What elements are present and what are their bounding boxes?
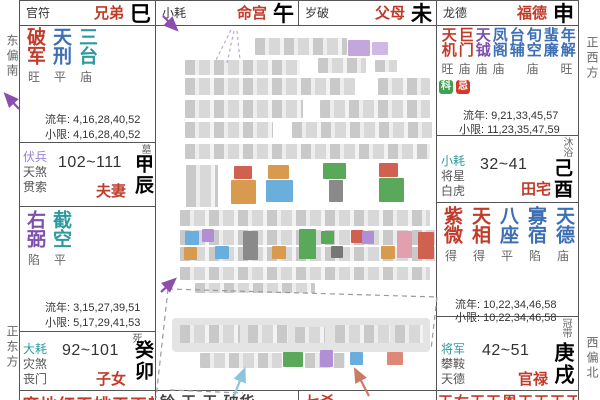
stem-branch: 己酉 — [551, 158, 572, 200]
palace-label-property[interactable]: 沐浴 小耗 将星 白虎 32~41 田宅 己酉 — [436, 135, 578, 202]
palace-label-children[interactable]: 死 大耗 灾煞 丧门 92~101 子女 癸卯 — [19, 331, 155, 390]
side-label-west: 正西方 — [584, 36, 600, 81]
star-name: 台辅 — [507, 27, 524, 57]
censored-color-block — [418, 232, 434, 259]
star-name: 天机 — [439, 27, 456, 57]
censored-block — [318, 58, 366, 73]
stem-branch: 甲辰 — [131, 154, 153, 196]
censored-color-block — [381, 246, 395, 259]
star-name: 旬空 — [524, 27, 541, 57]
hua-ke-badge: 科 — [439, 80, 453, 94]
censored-color-block — [299, 229, 316, 259]
age-range: 42~51 — [482, 342, 529, 360]
censored-color-block — [231, 180, 256, 204]
star-name: 右弼 — [24, 210, 44, 248]
censored-region — [156, 26, 435, 389]
star-column: 旬空 庙 — [524, 27, 541, 77]
censored-color-block — [331, 246, 343, 258]
censored-color-block — [215, 246, 229, 259]
minor-star: 灾煞 — [23, 358, 47, 371]
censored-color-block — [184, 247, 197, 260]
censored-block — [395, 325, 423, 343]
censored-color-block — [379, 178, 404, 202]
star-name: 八座 — [497, 206, 517, 244]
censored-color-block — [362, 231, 374, 244]
palace-header-parents[interactable]: 岁破 父母 未 — [299, 0, 436, 25]
palace-name: 父母 — [375, 2, 405, 23]
censored-block — [378, 78, 430, 95]
life-stage: 沐浴 — [561, 137, 572, 157]
stem-branch: 庚戌 — [550, 342, 573, 386]
life-stage: 墓 — [139, 144, 150, 154]
clipped-star-row: 廉地红天姚天巫耗 — [22, 391, 154, 400]
star-grade: 庙 — [526, 60, 538, 77]
star-grade: 平 — [501, 247, 513, 264]
star-name: 蜚廉 — [541, 27, 558, 57]
grid-line — [19, 206, 155, 207]
star-grade: 旺 — [441, 60, 453, 77]
life-stage: 冠带 — [560, 318, 571, 338]
palace-name: 福德 — [517, 2, 547, 23]
star-grade: 庙 — [458, 60, 470, 77]
grid-line — [578, 0, 579, 400]
stem-branch: 癸卯 — [131, 340, 153, 382]
side-label-west-north: 西偏北 — [584, 336, 600, 381]
palace-name: 兄弟 — [94, 2, 124, 23]
star-grade: 陷 — [529, 247, 541, 264]
star-name: 紫微 — [441, 206, 461, 244]
censored-color-block — [283, 352, 303, 367]
earthly-branch: 午 — [273, 0, 294, 28]
star-group: 右弼 陷 截空 平 — [22, 210, 72, 268]
censored-block — [195, 283, 315, 293]
minor-star: 天煞 — [23, 166, 47, 179]
censored-color-block — [320, 350, 333, 367]
clipped-star-row: 天右天天恩天天天天 — [438, 391, 577, 400]
xiaoxian-ages: 小限: 4,16,28,40,52 — [45, 126, 140, 142]
censored-color-block — [266, 180, 293, 202]
star-column: 蜚廉 — [541, 27, 558, 77]
star-column: 天刑 平 — [48, 27, 72, 85]
censored-block — [248, 325, 288, 343]
star-name: 三台 — [76, 27, 96, 65]
star-column: 凤阁 庙 — [490, 27, 507, 77]
star-name: 天刑 — [50, 27, 70, 65]
star-column: 截空 平 — [48, 210, 72, 268]
liunian-ages: 流年: 3,15,27,39,51 — [45, 299, 140, 315]
star-name: 破军 — [24, 27, 44, 65]
minor-star: 大耗 — [23, 343, 47, 356]
censored-color-block — [185, 231, 199, 245]
star-grade: 平 — [54, 68, 66, 85]
palace-label-spouse[interactable]: 墓 伏兵 天煞 贯索 102~111 夫妻 甲辰 — [19, 142, 155, 206]
palace-name: 命宫 — [237, 2, 267, 23]
year-god-label: 岁破 — [305, 4, 329, 21]
censored-block — [185, 78, 355, 95]
star-grade: 旺 — [28, 68, 40, 85]
censored-block — [292, 122, 432, 138]
star-column: 天德 庙 — [551, 206, 575, 264]
censored-block — [180, 325, 240, 343]
censored-color-block — [329, 180, 343, 202]
star-name: 天德 — [553, 206, 573, 244]
minor-star: 天德 — [441, 373, 465, 386]
minor-star: 贯索 — [23, 181, 47, 194]
censored-color-block — [202, 229, 214, 242]
censored-block — [180, 210, 430, 226]
censored-color-block — [268, 165, 289, 179]
ziwei-astrology-chart: 东偏南 正东方 正西方 西偏北 官符 兄弟 巳 小耗 命宫 午 岁破 父母 未 … — [0, 0, 600, 400]
star-name: 天相 — [469, 206, 489, 244]
star-name: 凤阁 — [490, 27, 507, 57]
censored-block — [186, 165, 218, 207]
minor-star: 白虎 — [441, 185, 465, 198]
censored-color-block — [272, 246, 286, 259]
palace-name: 田宅 — [521, 178, 551, 199]
star-grade: 庙 — [475, 60, 487, 77]
censored-color-block — [397, 231, 412, 258]
censored-color-block — [348, 40, 370, 56]
star-column: 天钺 庙 — [473, 27, 490, 77]
star-group: 紫微 得 天相 得 八座 平 寡宿 陷 天德 庙 — [439, 206, 575, 264]
censored-block — [335, 325, 390, 343]
star-column: 巨门 庙 — [456, 27, 473, 77]
star-column: 年解 旺 — [558, 27, 575, 77]
palace-header-fortune[interactable]: 龙德 福德 申 — [437, 0, 578, 25]
star-grade: 得 — [445, 247, 457, 264]
star-column: 寡宿 陷 — [523, 206, 547, 264]
censored-color-block — [243, 231, 258, 260]
censored-color-block — [350, 352, 363, 365]
palace-name: 官禄 — [518, 368, 548, 389]
star-column: 台辅 — [507, 27, 524, 77]
star-group: 破军 旺 天刑 平 三台 庙 — [22, 27, 98, 85]
hua-ji-badge: 忌 — [456, 80, 470, 94]
star-grade: 庙 — [492, 60, 504, 77]
censored-block — [295, 327, 325, 343]
palace-header-life[interactable]: 小耗 命宫 午 — [156, 0, 298, 25]
star-column: 右弼 陷 — [22, 210, 46, 268]
censored-block — [320, 100, 430, 118]
palace-name: 夫妻 — [96, 180, 126, 201]
minor-star: 丧门 — [23, 373, 47, 386]
year-god-label: 小耗 — [162, 4, 186, 21]
censored-block — [255, 38, 347, 55]
censored-color-block — [234, 166, 252, 179]
star-name: 巨门 — [456, 27, 473, 57]
censored-color-block — [323, 163, 346, 179]
clipped-star-row: 七杀 — [304, 391, 434, 400]
age-range: 92~101 — [62, 342, 119, 360]
grid-line — [298, 390, 299, 400]
palace-header-brothers[interactable]: 官符 兄弟 巳 — [20, 0, 155, 25]
censored-block — [180, 267, 430, 280]
star-grade: 庙 — [80, 68, 92, 85]
censored-color-block — [372, 42, 388, 55]
xiaoxian-ages: 小限: 5,17,29,41,53 — [45, 314, 140, 330]
year-god-label: 官符 — [26, 4, 50, 21]
minor-star: 伏兵 — [23, 151, 47, 164]
censored-block — [200, 353, 282, 368]
star-name: 截空 — [50, 210, 70, 248]
censored-color-block — [321, 231, 334, 244]
star-grade: 庙 — [557, 247, 569, 264]
star-column: 紫微 得 — [439, 206, 463, 264]
star-grade: 得 — [473, 247, 485, 264]
star-column: 破军 旺 — [22, 27, 46, 85]
minor-star: 将军 — [441, 343, 465, 356]
age-range: 32~41 — [480, 156, 527, 174]
earthly-branch: 未 — [411, 0, 432, 28]
palace-label-career[interactable]: 冠带 将军 攀鞍 天德 42~51 官禄 庚戌 — [436, 316, 578, 390]
star-column: 天机 旺 — [439, 27, 456, 77]
star-column: 八座 平 — [495, 206, 519, 264]
minor-star: 攀鞍 — [441, 358, 465, 371]
censored-block — [185, 60, 300, 75]
star-grade: 陷 — [28, 251, 40, 268]
censored-block — [185, 144, 430, 159]
star-column: 天相 得 — [467, 206, 491, 264]
earthly-branch: 巳 — [130, 0, 151, 28]
censored-block — [185, 100, 303, 118]
transform-badges: 科忌 — [439, 76, 473, 94]
censored-color-block — [379, 163, 398, 177]
star-name: 年解 — [558, 27, 575, 57]
star-group: 天机 旺 巨门 庙 天钺 庙 凤阁 庙 台辅 旬空 庙 蜚廉 年解 旺 — [439, 27, 575, 77]
star-name: 寡宿 — [525, 206, 545, 244]
liunian-ages: 流年: 4,16,28,40,52 — [45, 111, 140, 127]
age-range: 102~111 — [58, 154, 122, 172]
star-grade: 平 — [54, 251, 66, 268]
star-column: 三台 庙 — [74, 27, 98, 85]
earthly-branch: 申 — [553, 0, 574, 28]
clipped-star-row: 铃 天 天 破华 — [160, 391, 296, 400]
palace-name: 子女 — [96, 368, 126, 389]
year-god-label: 龙德 — [443, 4, 467, 21]
star-grade: 旺 — [560, 60, 572, 77]
grid-line — [436, 202, 578, 203]
minor-star: 将星 — [441, 170, 465, 183]
censored-block — [185, 122, 273, 138]
censored-block — [375, 60, 397, 72]
minor-star: 小耗 — [441, 155, 465, 168]
censored-color-block — [387, 352, 403, 365]
star-name: 天钺 — [473, 27, 490, 57]
